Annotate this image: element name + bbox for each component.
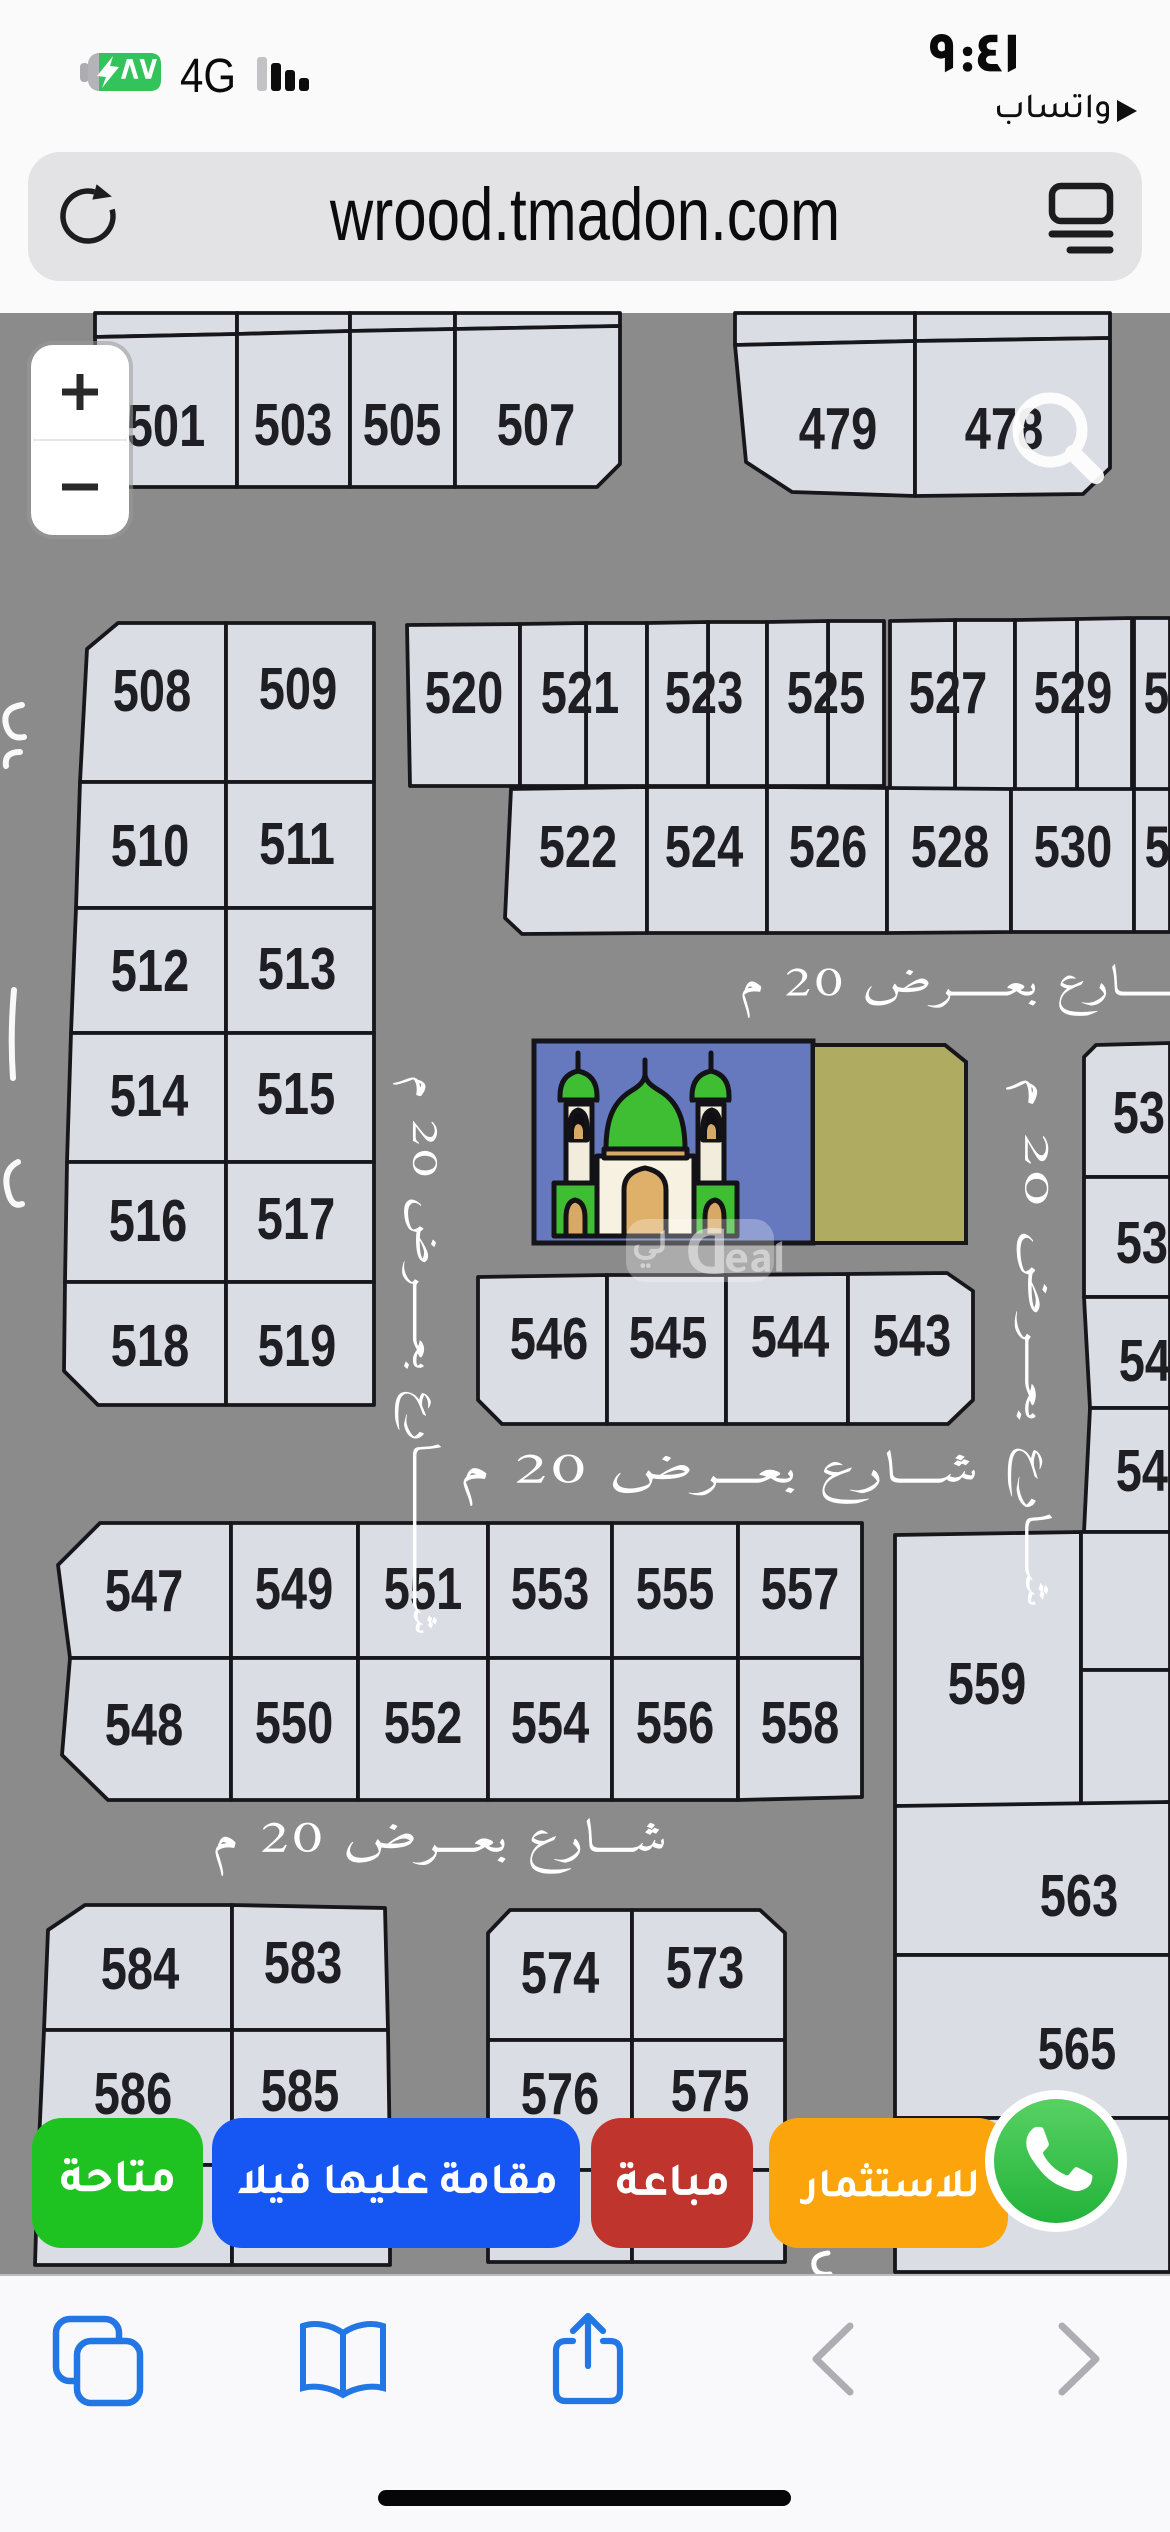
svg-text:575: 575 (671, 2058, 749, 2125)
svg-text:514: 514 (110, 1063, 189, 1130)
svg-text:507: 507 (497, 392, 575, 459)
svg-text:529: 529 (1034, 660, 1112, 727)
svg-text:4G: 4G (180, 48, 236, 102)
svg-text:524: 524 (665, 814, 744, 881)
svg-text:503: 503 (254, 392, 332, 459)
svg-text:519: 519 (258, 1313, 336, 1380)
svg-text:565: 565 (1038, 2016, 1116, 2083)
svg-text:546: 546 (510, 1306, 588, 1373)
svg-text:543: 543 (1116, 1438, 1170, 1505)
svg-text:518: 518 (111, 1313, 189, 1380)
svg-text:547: 547 (105, 1558, 183, 1625)
svg-text:516: 516 (109, 1188, 187, 1255)
svg-text:586: 586 (94, 2061, 172, 2128)
svg-text:551: 551 (384, 1556, 462, 1623)
svg-text:522: 522 (539, 814, 617, 881)
svg-text:510: 510 (111, 813, 189, 880)
svg-text:543: 543 (873, 1303, 951, 1370)
svg-text:530: 530 (1034, 814, 1112, 881)
svg-text:520: 520 (425, 660, 503, 727)
svg-text:545: 545 (629, 1305, 707, 1372)
svg-text:552: 552 (384, 1690, 462, 1757)
svg-text:553: 553 (511, 1556, 589, 1623)
svg-text:511: 511 (259, 811, 335, 878)
svg-text:521: 521 (541, 660, 619, 727)
svg-text:544: 544 (751, 1304, 830, 1371)
svg-text:550: 550 (255, 1690, 333, 1757)
svg-text:559: 559 (948, 1651, 1026, 1718)
svg-text:526: 526 (789, 814, 867, 881)
svg-text:533: 533 (1116, 1210, 1170, 1277)
svg-text:513: 513 (258, 936, 336, 1003)
svg-text:558: 558 (761, 1690, 839, 1757)
svg-text:573: 573 (666, 1935, 744, 2002)
svg-text:549: 549 (255, 1556, 333, 1623)
svg-text:wrood.tmadon.com: wrood.tmadon.com (329, 174, 840, 257)
svg-text:531: 531 (1144, 661, 1170, 727)
svg-text:505: 505 (363, 392, 441, 459)
svg-text:531: 531 (1113, 1080, 1170, 1147)
svg-text:479: 479 (799, 396, 877, 463)
svg-text:509: 509 (259, 656, 337, 723)
svg-text:576: 576 (521, 2061, 599, 2128)
svg-text:557: 557 (761, 1556, 839, 1623)
svg-text:532: 532 (1145, 815, 1170, 881)
svg-text:555: 555 (636, 1556, 714, 1623)
svg-text:508: 508 (113, 658, 191, 725)
svg-text:541: 541 (1119, 1328, 1170, 1395)
svg-text:528: 528 (911, 814, 989, 881)
svg-text:523: 523 (665, 660, 743, 727)
svg-text:512: 512 (111, 938, 189, 1005)
svg-text:556: 556 (636, 1690, 714, 1757)
svg-text:525: 525 (787, 660, 865, 727)
svg-text:583: 583 (264, 1930, 342, 1997)
svg-text:501: 501 (127, 393, 205, 460)
svg-text:517: 517 (257, 1186, 335, 1253)
svg-text:585: 585 (261, 2058, 339, 2125)
svg-text:554: 554 (511, 1690, 590, 1757)
svg-text:574: 574 (521, 1940, 600, 2007)
svg-text:527: 527 (909, 660, 987, 727)
svg-text:548: 548 (105, 1692, 183, 1759)
svg-text:584: 584 (101, 1936, 180, 2003)
svg-text:515: 515 (257, 1061, 335, 1128)
svg-text:563: 563 (1040, 1863, 1118, 1930)
